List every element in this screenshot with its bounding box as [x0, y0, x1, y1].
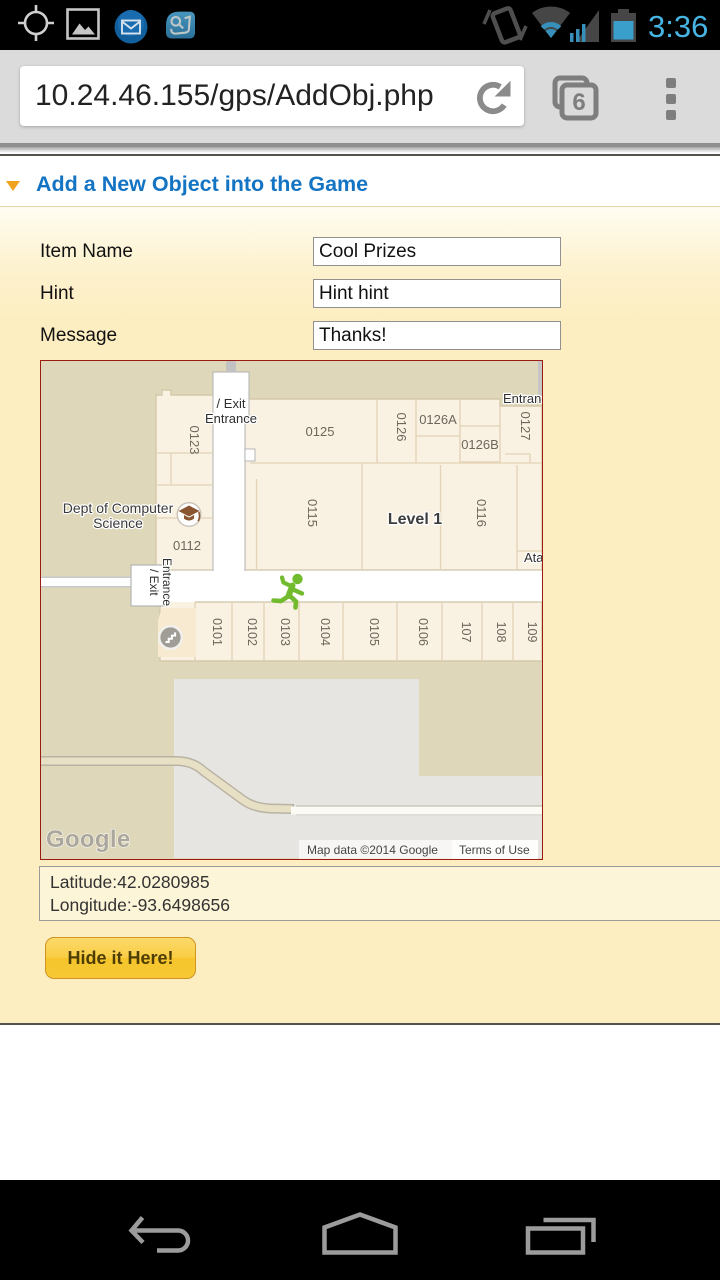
svg-text:0101: 0101 [210, 618, 224, 646]
svg-text:Science: Science [93, 515, 143, 531]
svg-text:0104: 0104 [318, 618, 332, 646]
svg-text:0127: 0127 [518, 412, 533, 441]
svg-text:Entrance: Entrance [205, 411, 257, 426]
svg-text:0116: 0116 [474, 499, 489, 527]
svg-text:107: 107 [459, 622, 473, 643]
svg-text:/ Exit: / Exit [217, 396, 246, 411]
svg-text:108: 108 [494, 622, 508, 643]
svg-text:Ata: Ata [524, 550, 543, 565]
svg-text:0126: 0126 [394, 413, 409, 442]
svg-text:0126B: 0126B [461, 437, 499, 452]
svg-text:Entrance: Entrance [160, 558, 174, 606]
svg-text:Google: Google [46, 826, 130, 853]
svg-text:Dept of Computer: Dept of Computer [63, 500, 174, 516]
svg-text:0126A: 0126A [419, 412, 457, 427]
svg-text:Level 1: Level 1 [388, 511, 442, 528]
svg-text:0123: 0123 [187, 426, 202, 455]
svg-text:0106: 0106 [416, 618, 430, 646]
svg-text:Map data ©2014 Google: Map data ©2014 Google [307, 843, 438, 857]
svg-text:0105: 0105 [367, 618, 381, 646]
svg-text:0115: 0115 [305, 499, 320, 527]
svg-text:Terms of Use: Terms of Use [459, 843, 530, 857]
svg-text:3:36: 3:36 [648, 9, 708, 44]
svg-text:/ Exit: / Exit [147, 569, 161, 596]
svg-text:0125: 0125 [306, 424, 335, 439]
svg-text:109: 109 [525, 622, 539, 643]
svg-text:0103: 0103 [278, 618, 292, 646]
svg-text:Entranc: Entranc [503, 391, 543, 406]
svg-text:0102: 0102 [245, 618, 259, 646]
svg-text:6: 6 [572, 89, 585, 116]
svg-text:0112: 0112 [173, 538, 201, 553]
